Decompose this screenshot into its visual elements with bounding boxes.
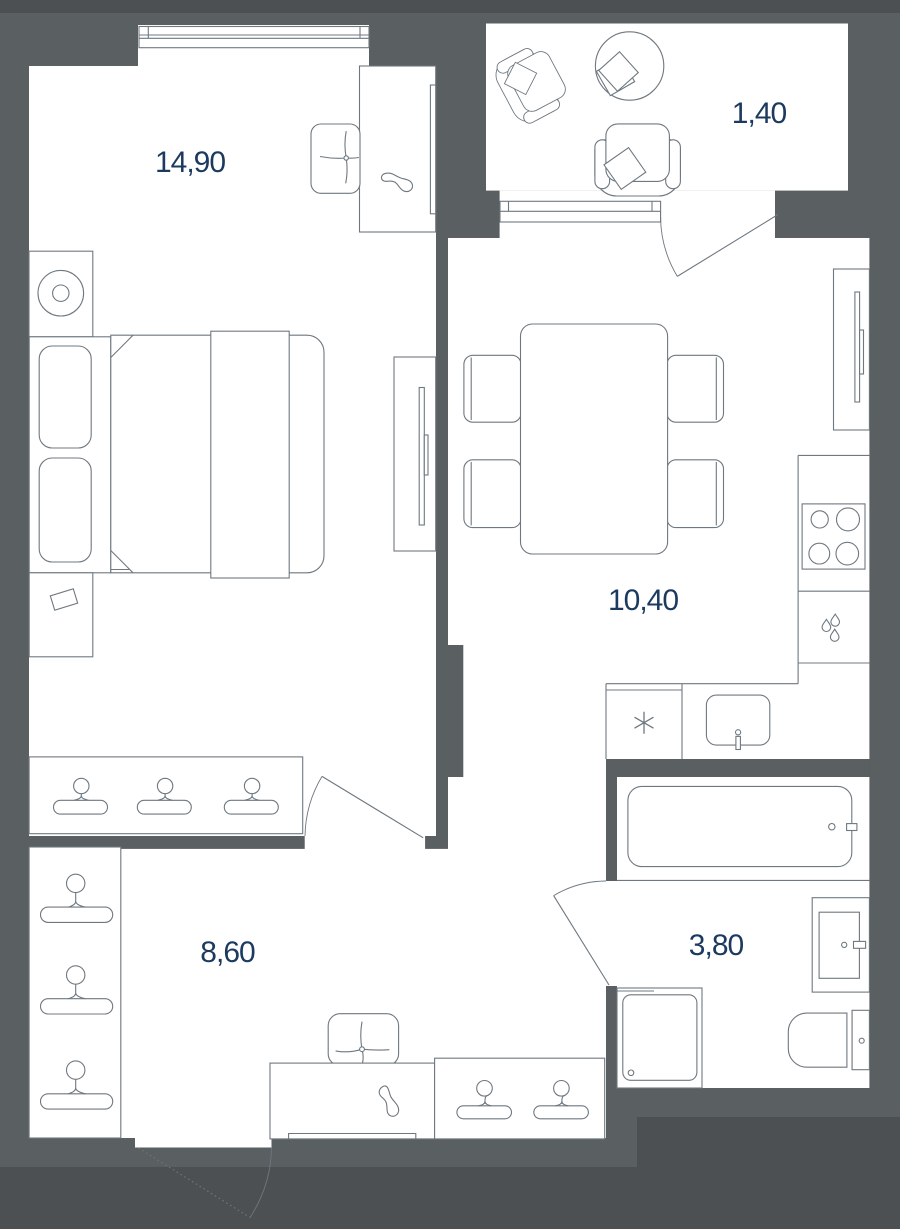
svg-text:10,40: 10,40 [608,584,678,617]
svg-text:3,80: 3,80 [689,929,744,962]
svg-text:8,60: 8,60 [200,936,255,969]
svg-text:1,40: 1,40 [732,97,787,130]
svg-text:14,90: 14,90 [155,146,225,179]
